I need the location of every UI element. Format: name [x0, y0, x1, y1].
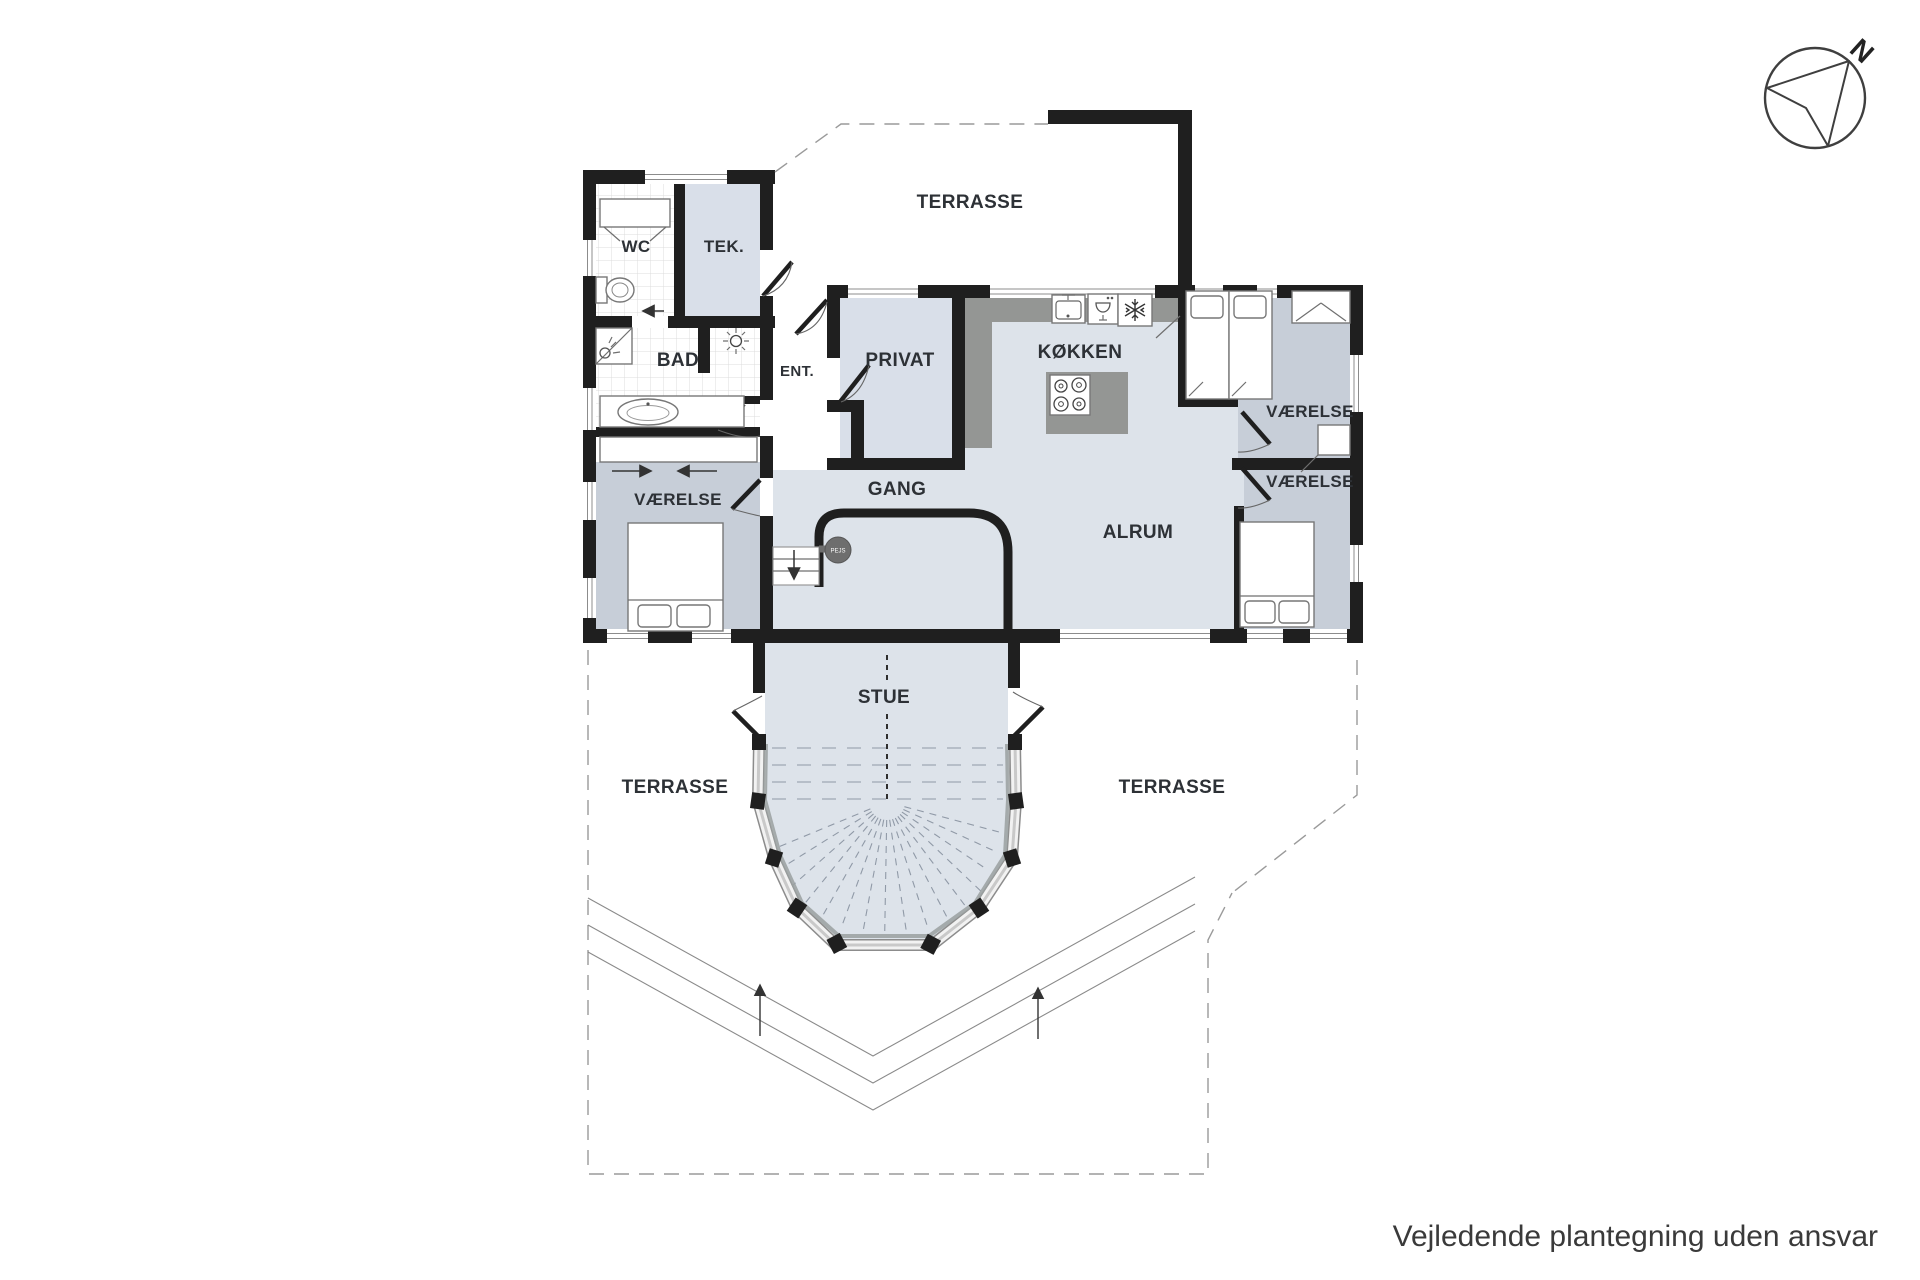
terrace-wall-right	[1178, 110, 1192, 290]
terrasse-right-label: TERRASSE	[1119, 777, 1226, 798]
wardrobe-top-right	[1292, 291, 1350, 323]
compass-icon: N	[1765, 33, 1880, 148]
room-label-stue: STUE	[858, 687, 910, 708]
shower-icon	[596, 328, 632, 364]
stove-icon	[1050, 375, 1090, 415]
bathroom-sink-icon	[600, 396, 744, 427]
room-label-tek: TEK.	[704, 237, 744, 256]
double-bed-left	[628, 523, 723, 631]
room-label-bad: BAD	[657, 350, 699, 371]
room-label-vaerelse-bottom-right: VÆRELSE	[1266, 472, 1354, 491]
room-label-vaerelse-left: VÆRELSE	[634, 490, 722, 509]
fireplace-label: PEJS	[830, 549, 845, 555]
room-label-wc: WC	[621, 237, 650, 256]
terrace-top-boundary	[775, 124, 1048, 172]
room-label-gang: GANG	[868, 479, 927, 500]
double-bed-right	[1240, 522, 1314, 627]
terrace-right-boundary	[1232, 660, 1357, 893]
room-label-kokken: KØKKEN	[1038, 342, 1123, 363]
stairs	[773, 547, 819, 585]
single-beds	[1186, 291, 1272, 399]
disclaimer-text: Vejledende plantegning uden ansvar	[1393, 1220, 1878, 1253]
room-label-ent: ENT.	[780, 363, 814, 380]
room-label-vaerelse-top-right: VÆRELSE	[1266, 402, 1354, 421]
floor-plan-page: PEJS WC TEK. BAD ENT. PRIVAT KØKKEN GANG…	[0, 0, 1920, 1280]
freezer-icon	[1118, 294, 1152, 326]
room-label-alrum: ALRUM	[1103, 522, 1174, 543]
terrasse-left-label: TERRASSE	[622, 777, 729, 798]
terrace-wall-top	[1048, 110, 1192, 124]
toilet-icon	[596, 277, 634, 303]
kitchen-sink-icon	[1052, 295, 1085, 323]
terrasse-top-label: TERRASSE	[917, 192, 1024, 213]
room-label-privat: PRIVAT	[865, 350, 934, 371]
floor-plan-svg: PEJS WC TEK. BAD ENT. PRIVAT KØKKEN GANG…	[0, 0, 1920, 1280]
dishwasher-icon	[1088, 294, 1118, 324]
